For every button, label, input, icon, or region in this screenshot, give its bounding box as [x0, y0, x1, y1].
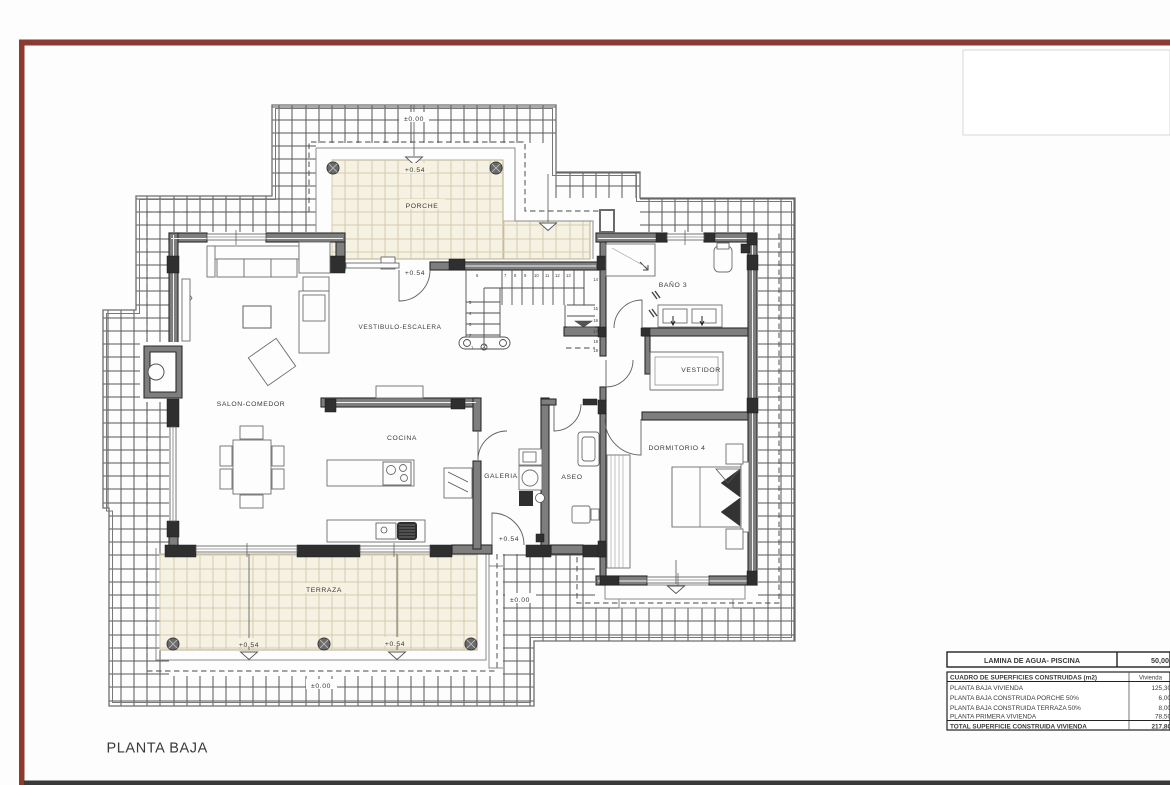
svg-text:78,50: 78,50: [1155, 714, 1170, 721]
svg-text:217,80: 217,80: [1151, 724, 1170, 731]
svg-text:+0.54: +0.54: [405, 270, 425, 277]
svg-text:PLANTA PRIMERA VIVIENDA: PLANTA PRIMERA VIVIENDA: [950, 714, 1037, 721]
svg-text:COCINA: COCINA: [387, 435, 417, 442]
svg-text:PLANTA BAJA CONSTRUIDA TERRAZA: PLANTA BAJA CONSTRUIDA TERRAZA 50%: [950, 705, 1081, 712]
svg-text:±0.00: ±0.00: [404, 116, 424, 123]
svg-text:11: 11: [545, 273, 550, 278]
svg-text:16: 16: [593, 318, 598, 323]
svg-text:50,00: 50,00: [1151, 656, 1169, 665]
svg-text:125,30: 125,30: [1151, 685, 1170, 692]
svg-text:10: 10: [534, 273, 539, 278]
svg-text:+0.54: +0.54: [499, 536, 519, 543]
svg-text:12: 12: [555, 273, 560, 278]
svg-text:TERRAZA: TERRAZA: [306, 587, 342, 594]
svg-text:GALERIA: GALERIA: [484, 473, 518, 480]
svg-text:+0.54: +0.54: [405, 167, 425, 174]
svg-text:17: 17: [593, 329, 598, 334]
svg-text:Vivienda: Vivienda: [1139, 676, 1163, 682]
svg-text:14: 14: [593, 277, 598, 282]
svg-text:VESTIDOR: VESTIDOR: [681, 367, 721, 374]
svg-text:CUADRO DE SUPERFICIES CONSTRUI: CUADRO DE SUPERFICIES CONSTRUIDAS (m2): [950, 675, 1097, 682]
svg-text:18: 18: [593, 339, 598, 344]
svg-text:TOTAL SUPERFICIE CONSTRUIDA VI: TOTAL SUPERFICIE CONSTRUIDA VIVIENDA: [950, 724, 1087, 731]
svg-text:LAMINA DE AGUA- PISCINA: LAMINA DE AGUA- PISCINA: [984, 656, 1080, 665]
svg-text:BAÑO 3: BAÑO 3: [659, 280, 688, 289]
svg-text:PORCHE: PORCHE: [406, 203, 439, 210]
svg-text:19: 19: [593, 348, 598, 353]
svg-text:15: 15: [593, 306, 598, 311]
svg-text:VESTIBULO-ESCALERA: VESTIBULO-ESCALERA: [359, 324, 442, 331]
svg-text:+0.54: +0.54: [385, 641, 405, 648]
svg-text:PLANTA BAJA: PLANTA BAJA: [107, 741, 208, 757]
svg-text:+0.54: +0.54: [239, 642, 259, 649]
svg-text:SALON-COMEDOR: SALON-COMEDOR: [217, 401, 286, 408]
svg-text:6,00: 6,00: [1159, 695, 1170, 702]
svg-text:13: 13: [566, 273, 571, 278]
svg-text:8,00: 8,00: [1159, 705, 1170, 712]
svg-text:PLANTA BAJA CONSTRUIDA PORCHE: PLANTA BAJA CONSTRUIDA PORCHE 50%: [950, 695, 1079, 702]
svg-text:DORMITORIO 4: DORMITORIO 4: [649, 445, 706, 452]
svg-text:ASEO: ASEO: [561, 474, 582, 481]
svg-text:PLANTA BAJA VIVIENDA: PLANTA BAJA VIVIENDA: [950, 685, 1024, 692]
svg-text:±0.00: ±0.00: [510, 597, 530, 604]
svg-text:±0.00: ±0.00: [311, 683, 331, 690]
